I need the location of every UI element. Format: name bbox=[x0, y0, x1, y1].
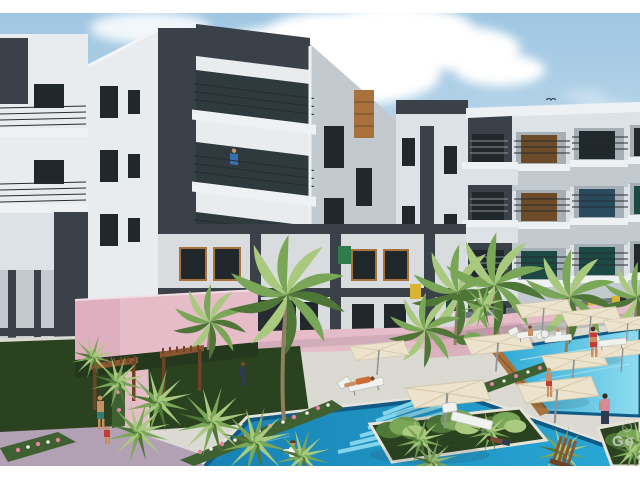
side-table bbox=[541, 330, 549, 338]
frame-bottom bbox=[0, 466, 640, 480]
rendering-image: Go bbox=[0, 0, 640, 480]
watermark-text: Go bbox=[612, 433, 635, 450]
frame-top bbox=[0, 0, 640, 13]
apartment-complex-rendering: Go bbox=[0, 0, 640, 480]
